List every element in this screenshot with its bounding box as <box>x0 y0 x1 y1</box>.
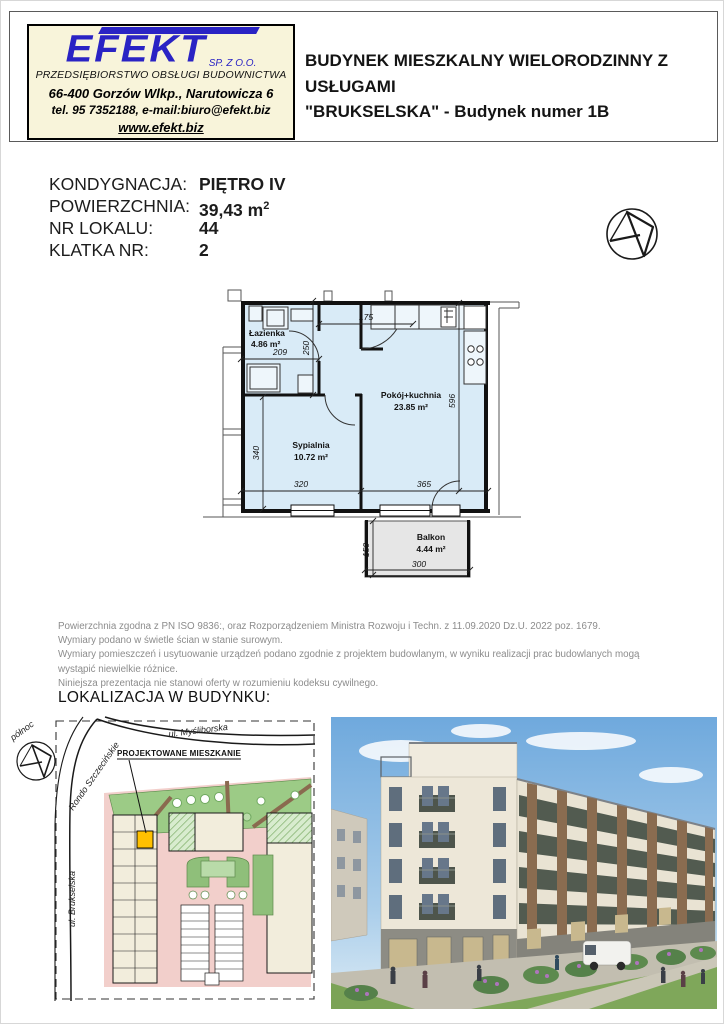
apartment-details: KONDYGNACJA: PIĘTRO IV POWIERZCHNIA: 39,… <box>49 173 286 261</box>
dim-bottom-left: 320 <box>294 479 308 489</box>
dim-bath-width: 209 <box>272 347 287 357</box>
site-plan-map: północ <box>9 715 321 1007</box>
floor-plan: Łazienka 4.86 m² Pokój+kuchnia 23.85 m² … <box>199 289 533 591</box>
disclaimer-line-1: Powierzchnia zgodna z PN ISO 9836:, oraz… <box>58 620 676 634</box>
site-block <box>104 777 312 987</box>
dim-balcony-depth: 150 <box>361 543 371 557</box>
detail-value: 44 <box>199 217 218 239</box>
offer-page: EFEKTSP. Z O.O. PRZEDSIĘBIORSTWO OBSŁUGI… <box>0 0 724 1024</box>
compass-icon <box>604 206 660 262</box>
detail-row-staircase: KLATKA NR: 2 <box>49 239 286 261</box>
room-name-bathroom: Łazienka <box>249 328 285 338</box>
logo-address: 66-400 Gorzów Wlkp., Narutowicza 6 <box>29 86 293 101</box>
building-render-photo <box>331 717 717 1009</box>
logo-name: EFEKT <box>66 30 207 68</box>
logo-suffix: SP. Z O.O. <box>209 58 257 69</box>
detail-label: KLATKA NR: <box>49 239 199 261</box>
north-label: północ <box>9 719 36 744</box>
location-heading: LOKALIZACJA W BUDYNKU: <box>58 689 270 707</box>
logo-contact: tel. 95 7352188, e-mail:biuro@efekt.biz <box>29 103 293 117</box>
disclaimer-line-2: Wymiary podano w świetle ścian w stanie … <box>58 634 676 648</box>
logo-website-link[interactable]: www.efekt.biz <box>29 120 293 135</box>
detail-row-floor: KONDYGNACJA: PIĘTRO IV <box>49 173 286 195</box>
room-name-balcony: Balkon <box>417 532 445 542</box>
title-line-2: "BRUKSELSKA" - Budynek numer 1B <box>305 99 720 125</box>
detail-row-unit-number: NR LOKALU: 44 <box>49 217 286 239</box>
detail-label: POWIERZCHNIA: <box>49 195 199 217</box>
neighbour-building <box>331 809 367 941</box>
callout-label: PROJEKTOWANE MIESZKANIE <box>117 749 241 758</box>
superscript-2: 2 <box>263 200 269 212</box>
main-building-tower <box>381 743 517 975</box>
dim-balcony-width: 300 <box>412 559 426 569</box>
company-logo: EFEKTSP. Z O.O. PRZEDSIĘBIORSTWO OBSŁUGI… <box>27 24 295 140</box>
document-title: BUDYNEK MIESZKALNY WIELORODZINNY Z USŁUG… <box>305 48 720 125</box>
room-area-living: 23.85 m² <box>394 402 428 412</box>
legal-disclaimer: Powierzchnia zgodna z PN ISO 9836:, oraz… <box>58 620 676 691</box>
room-area-bedroom: 10.72 m² <box>294 452 328 462</box>
street-label-left: ul. Brukselska <box>67 871 77 927</box>
detail-value: 2 <box>199 239 209 261</box>
highlighted-apartment-unit <box>137 831 153 848</box>
detail-value: PIĘTRO IV <box>199 173 286 195</box>
disclaimer-line-3: Wymiary pomieszczeń i usytuowanie urządz… <box>58 648 676 676</box>
detail-label: KONDYGNACJA: <box>49 173 199 195</box>
detail-row-area: POWIERZCHNIA: 39,43 m2 <box>49 195 286 217</box>
efekt-logo: EFEKTSP. Z O.O. <box>66 29 257 69</box>
street-label-top: ul. Myśliborska <box>168 722 228 739</box>
detail-value: 39,43 m2 <box>199 195 269 217</box>
dim-bottom-right: 365 <box>417 479 431 489</box>
title-line-1: BUDYNEK MIESZKALNY WIELORODZINNY Z USŁUG… <box>305 48 720 99</box>
dim-hall-width: 175 <box>359 312 373 322</box>
dim-bedroom-height: 340 <box>251 446 261 460</box>
logo-subtitle: PRZEDSIĘBIORSTWO OBSŁUGI BUDOWNICTWA <box>29 69 293 81</box>
dim-bath-height: 250 <box>301 341 311 356</box>
dim-living-height: 596 <box>447 394 457 408</box>
north-compass-icon <box>17 742 55 780</box>
room-name-bedroom: Sypialnia <box>292 440 330 450</box>
room-area-balcony: 4.44 m² <box>416 544 445 554</box>
detail-label: NR LOKALU: <box>49 217 199 239</box>
header: EFEKTSP. Z O.O. PRZEDSIĘBIORSTWO OBSŁUGI… <box>9 11 718 142</box>
room-name-living: Pokój+kuchnia <box>381 390 441 400</box>
